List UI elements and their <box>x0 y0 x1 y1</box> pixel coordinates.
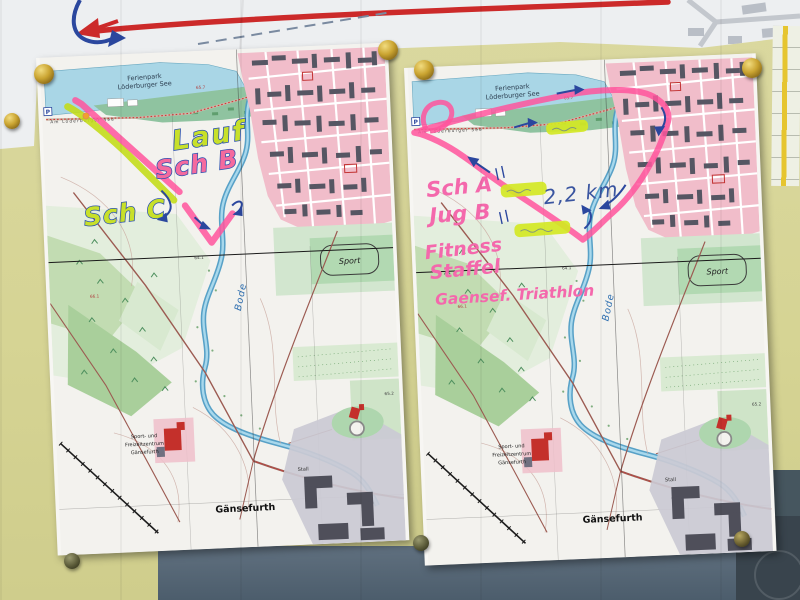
board-scratch <box>754 550 800 600</box>
right-basemap <box>407 53 773 565</box>
left-map-sheet: Lauf Sch B Sch C <box>36 43 409 556</box>
jug-b-label: Jug B <box>425 199 492 228</box>
red-route-line <box>86 2 668 32</box>
side-paper-strip <box>771 26 800 186</box>
blue-arrowhead-icon <box>108 30 126 47</box>
poster-crease <box>240 0 243 52</box>
start-dot <box>83 113 90 120</box>
pushpin-icon <box>742 58 762 78</box>
pushpin-icon <box>64 553 80 569</box>
right-map-sheet: 2,2 km Sch A Jug B Fitness Staffel Gaens… <box>404 53 777 565</box>
pushpin-icon <box>734 531 750 547</box>
pushpin-icon <box>378 40 398 60</box>
pushpin-icon <box>34 64 54 84</box>
pushpin-icon <box>4 113 20 129</box>
photo-of-pinned-maps: P <box>0 0 800 600</box>
pushpin-icon <box>414 60 434 80</box>
pushpin-icon <box>413 535 429 551</box>
